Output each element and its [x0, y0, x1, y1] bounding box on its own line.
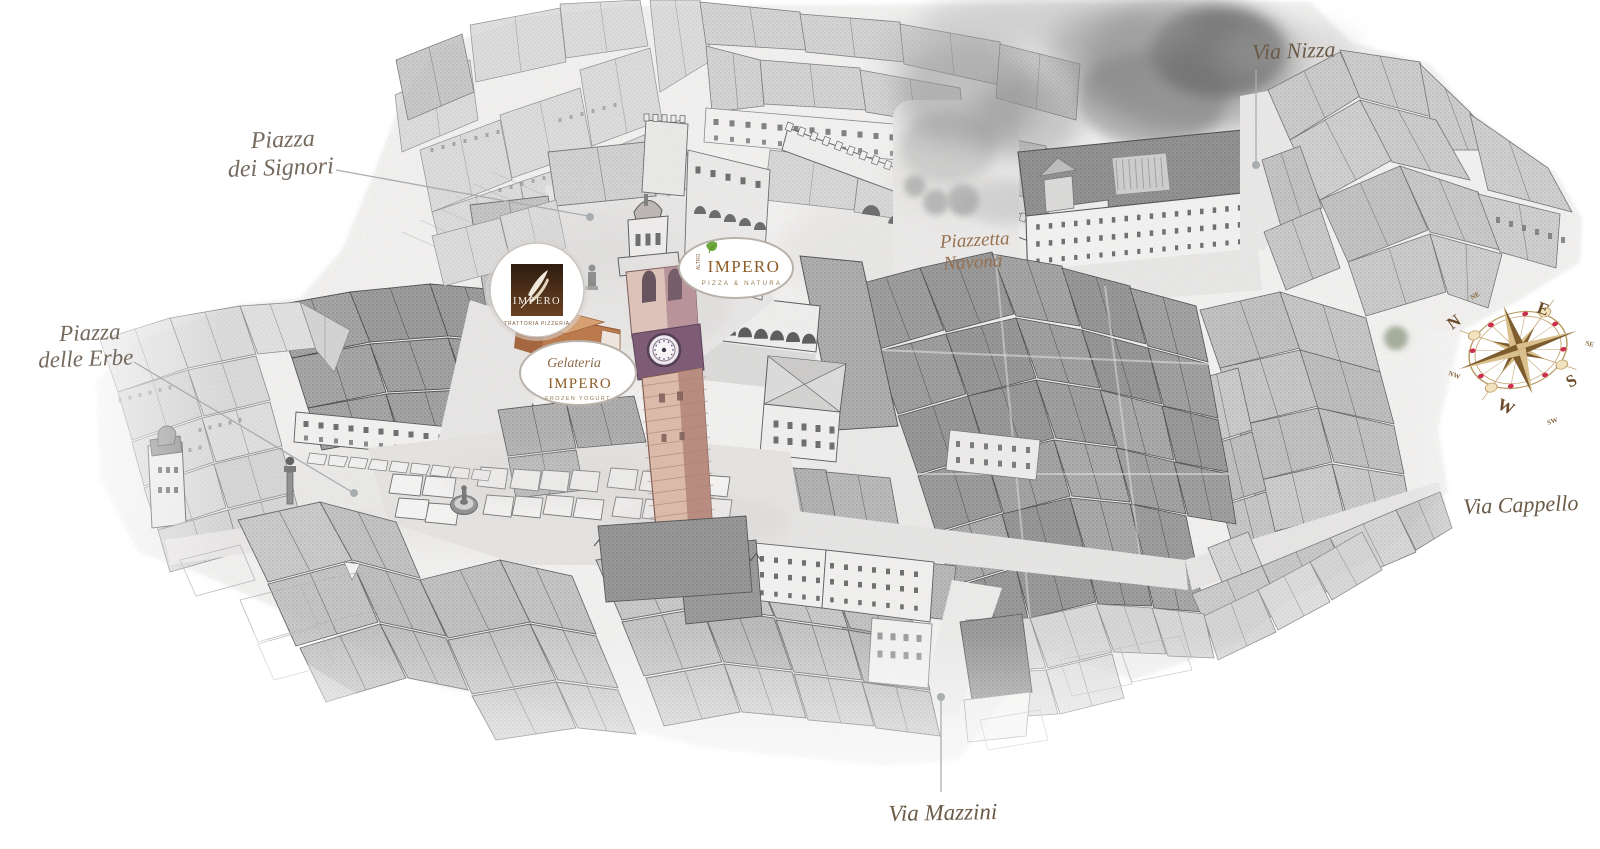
svg-text:Via Nizza: Via Nizza	[1252, 37, 1336, 65]
svg-text:dei Signori: dei Signori	[227, 153, 334, 183]
svg-text:Navona: Navona	[942, 250, 1003, 274]
svg-text:IMPERO: IMPERO	[548, 376, 612, 392]
svg-text:TRATTORIA PIZZERIA: TRATTORIA PIZZERIA	[504, 321, 570, 327]
svg-text:Via Cappello: Via Cappello	[1463, 490, 1579, 519]
svg-text:FROZEN YOGURT: FROZEN YOGURT	[545, 396, 611, 402]
svg-text:Piazza: Piazza	[58, 319, 121, 346]
svg-text:Gelateria: Gelateria	[547, 356, 601, 371]
svg-text:ALTRO: ALTRO	[696, 254, 702, 270]
svg-text:delle Erbe: delle Erbe	[38, 344, 134, 372]
svg-text:IMPERO: IMPERO	[513, 296, 561, 307]
svg-text:Piazzetta: Piazzetta	[938, 228, 1010, 253]
svg-text:Piazza: Piazza	[249, 126, 315, 154]
svg-text:PIZZA & NATURA: PIZZA & NATURA	[702, 280, 783, 287]
svg-text:IMPERO: IMPERO	[708, 257, 781, 276]
svg-text:Via Mazzini: Via Mazzini	[888, 799, 997, 826]
